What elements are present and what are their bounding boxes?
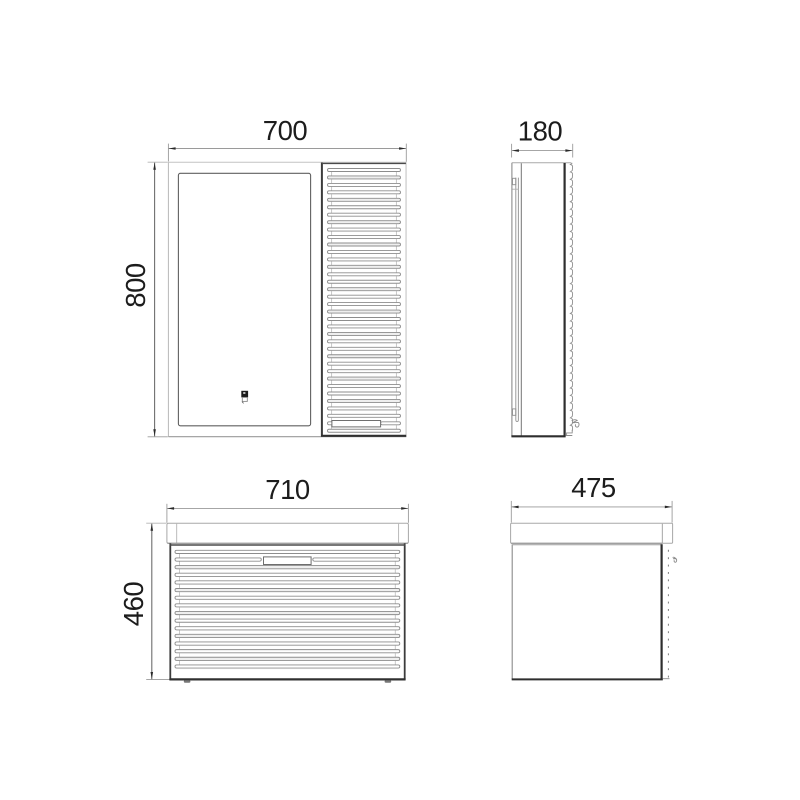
svg-text:800: 800 [120,263,151,308]
svg-text:475: 475 [571,472,616,503]
svg-text:700: 700 [263,115,308,146]
svg-text:180: 180 [518,116,563,147]
svg-text:460: 460 [118,582,149,627]
svg-text:710: 710 [265,474,310,505]
